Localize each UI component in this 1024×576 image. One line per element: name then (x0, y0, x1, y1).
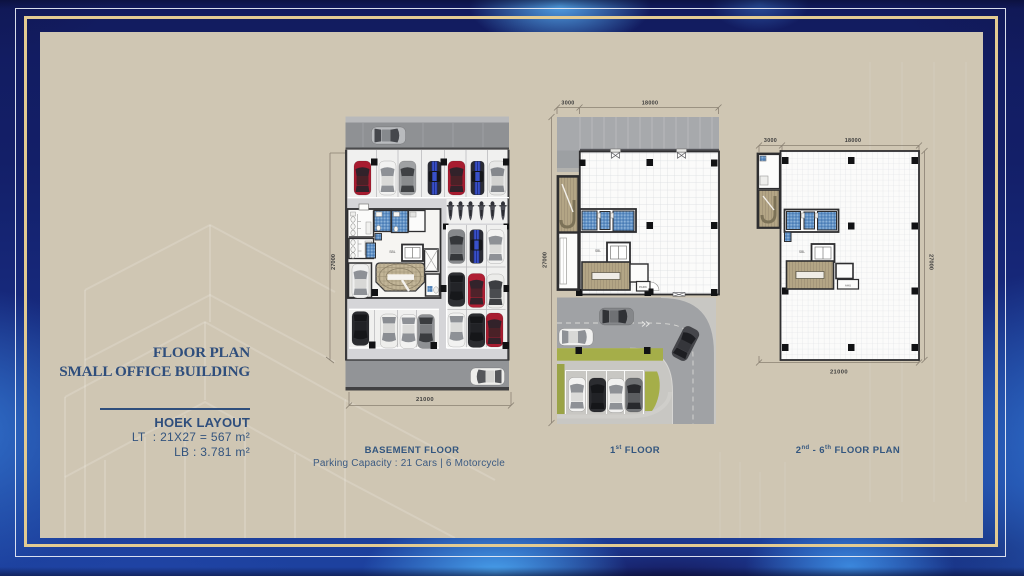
svg-text:27000: 27000 (543, 252, 549, 268)
svg-text:18000: 18000 (642, 101, 659, 107)
svg-text:3000: 3000 (561, 101, 574, 107)
svg-text:AHU: AHU (845, 284, 851, 288)
svg-text:PARK: PARK (639, 285, 647, 289)
svg-text:3000: 3000 (764, 138, 777, 144)
svg-text:SBL: SBL (595, 249, 601, 253)
svg-text:21000: 21000 (416, 397, 434, 403)
svg-text:SBL: SBL (799, 250, 805, 254)
svg-text:SBL: SBL (389, 250, 396, 254)
svg-text:18000: 18000 (845, 138, 862, 144)
svg-text:21000: 21000 (830, 370, 848, 376)
svg-text:27000: 27000 (928, 254, 934, 270)
svg-text:27000: 27000 (331, 254, 337, 270)
